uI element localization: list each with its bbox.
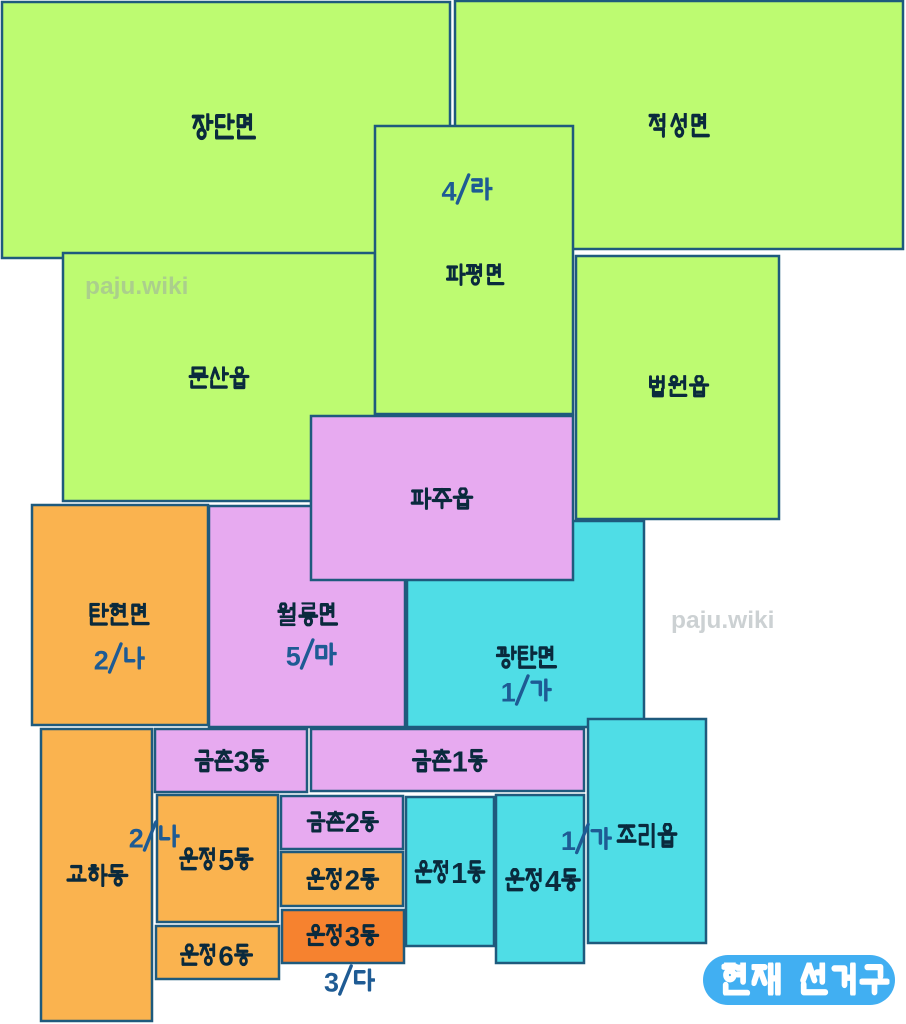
svg-text:1: 1 (452, 747, 468, 779)
svg-text:paju.wiki: paju.wiki (85, 273, 188, 300)
svg-text:2: 2 (94, 646, 109, 676)
svg-text:1: 1 (451, 858, 467, 890)
svg-text:3: 3 (345, 921, 360, 952)
svg-text:2: 2 (345, 808, 360, 838)
svg-text:3: 3 (234, 746, 250, 778)
svg-text:1: 1 (561, 826, 576, 856)
svg-text:6: 6 (218, 941, 233, 972)
svg-text:4: 4 (442, 177, 457, 207)
svg-text:3: 3 (324, 968, 339, 998)
svg-text:2: 2 (345, 865, 360, 896)
svg-text:5: 5 (218, 845, 234, 877)
svg-text:1: 1 (501, 678, 516, 708)
svg-text:2: 2 (129, 824, 144, 854)
svg-text:paju.wiki: paju.wiki (671, 607, 774, 634)
svg-text:4: 4 (545, 866, 561, 898)
svg-text:5: 5 (286, 642, 301, 672)
